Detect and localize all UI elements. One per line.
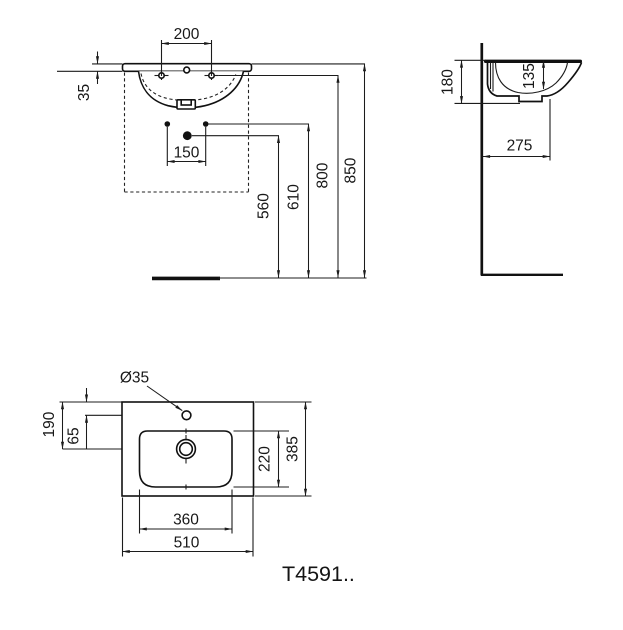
dim-tap-level-height: 800 [315,76,339,278]
dim-label-d35: Ø35 [120,370,149,387]
dim-label-385: 385 [285,436,302,462]
dim-label-150: 150 [174,145,200,162]
dim-label-610: 610 [286,184,303,210]
dim-front-height: 180 [440,60,521,103]
side-view: 180 135 275 [440,43,583,276]
dim-label-200: 200 [174,26,200,43]
fixing-hole-left [165,121,171,127]
plan-view: Ø35 190 65 220 385 [41,370,312,557]
dim-label-800: 800 [315,162,332,188]
dim-label-65: 65 [66,427,83,444]
dim-depth-from-wall: 275 [483,99,550,161]
dim-fixing-height: 610 [286,124,309,278]
dim-tap-hole-offset: 65 [66,388,87,449]
dim-label-560: 560 [256,193,273,219]
dim-drain-offset: 190 [41,402,63,449]
drawing-svg: 200 35 150 560 610 800 [0,0,623,630]
dim-label-220: 220 [257,446,274,472]
dim-label-275: 275 [507,138,533,155]
dim-label-180: 180 [440,69,457,95]
dim-bowl-inner-depth: 135 [521,61,544,90]
dim-label-850: 850 [343,157,360,183]
waste-outlet-point [183,131,192,140]
overflow-slot [181,100,191,105]
dim-label-510: 510 [174,535,200,552]
front-view: 200 35 150 560 610 800 [57,26,367,278]
fixing-hole-right [203,121,209,127]
dim-label-135: 135 [521,63,538,89]
product-code: T4591.. [282,562,355,586]
dim-label-190: 190 [41,411,58,437]
dim-label-35: 35 [76,84,93,101]
dim-rim-thickness: 35 [76,52,98,102]
dim-label-360: 360 [173,512,199,529]
tap-hole-center-front [184,67,190,73]
dim-waste-height: 560 [256,136,279,278]
technical-drawing-washbasin: 200 35 150 560 610 800 [0,0,623,630]
tap-hole-plan [182,411,191,420]
dim-rim-height: 850 [343,64,365,278]
